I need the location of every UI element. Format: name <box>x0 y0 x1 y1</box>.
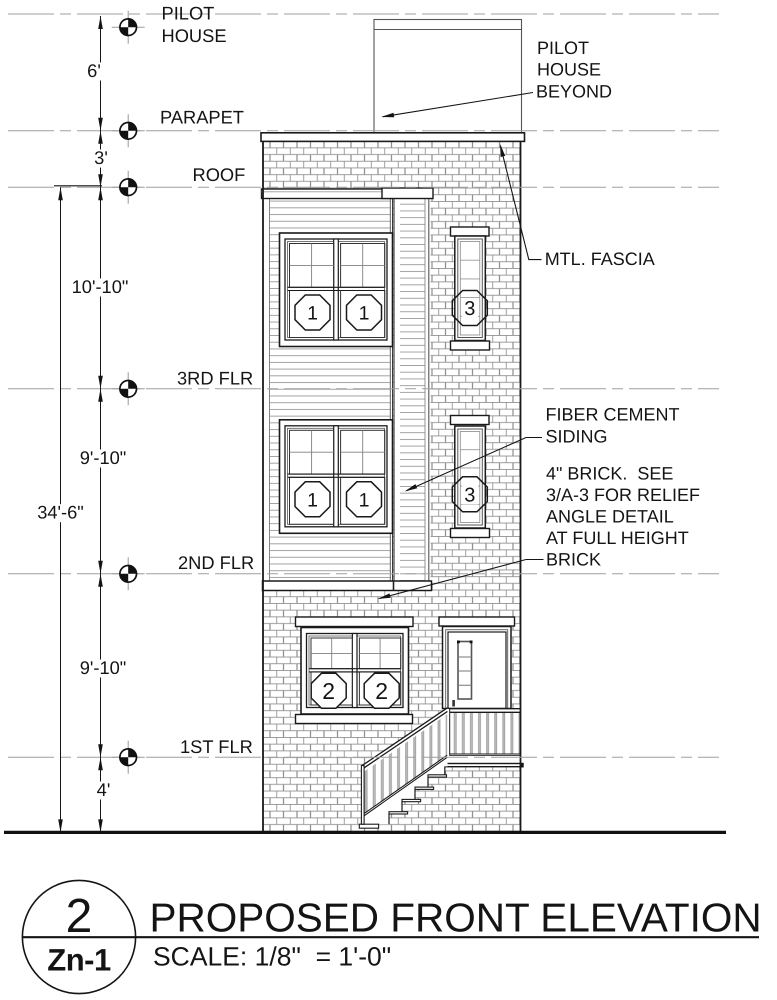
svg-text:10'-10": 10'-10" <box>72 276 129 297</box>
svg-text:2: 2 <box>322 678 335 704</box>
svg-text:3RD FLR: 3RD FLR <box>177 368 253 389</box>
svg-text:9'-10": 9'-10" <box>80 447 127 468</box>
svg-text:1: 1 <box>307 303 318 325</box>
svg-text:1: 1 <box>307 489 318 511</box>
svg-text:BRICK: BRICK <box>546 550 601 570</box>
svg-text:PARAPET: PARAPET <box>160 107 244 128</box>
svg-text:AT FULL HEIGHT: AT FULL HEIGHT <box>546 528 689 548</box>
svg-text:4': 4' <box>97 779 111 800</box>
svg-text:SCALE: 1/8" = 1'-0": SCALE: 1/8" = 1'-0" <box>153 941 391 971</box>
svg-text:1: 1 <box>359 303 370 325</box>
svg-text:HOUSE: HOUSE <box>162 25 227 46</box>
svg-text:2: 2 <box>375 678 388 704</box>
svg-text:2: 2 <box>66 890 93 943</box>
svg-text:ANGLE DETAIL: ANGLE DETAIL <box>546 507 674 527</box>
svg-text:SIDING: SIDING <box>546 427 608 447</box>
svg-text:ROOF: ROOF <box>193 164 246 185</box>
svg-text:3/A-3 FOR RELIEF: 3/A-3 FOR RELIEF <box>546 485 700 505</box>
svg-text:3': 3' <box>94 147 108 168</box>
svg-text:2ND FLR: 2ND FLR <box>178 552 254 573</box>
svg-text:1ST FLR: 1ST FLR <box>180 736 253 757</box>
svg-text:9'-10": 9'-10" <box>80 657 127 678</box>
svg-text:PROPOSED FRONT ELEVATION: PROPOSED FRONT ELEVATION <box>150 895 762 941</box>
svg-text:FIBER CEMENT: FIBER CEMENT <box>546 405 680 425</box>
svg-text:BEYOND: BEYOND <box>536 81 612 101</box>
svg-text:34'-6": 34'-6" <box>37 502 84 523</box>
svg-text:3: 3 <box>464 485 475 507</box>
svg-text:Zn-1: Zn-1 <box>47 943 111 978</box>
svg-text:PILOT: PILOT <box>537 38 589 58</box>
svg-text:1: 1 <box>359 489 370 511</box>
svg-text:6': 6' <box>87 60 101 81</box>
svg-text:3: 3 <box>464 298 475 320</box>
svg-text:HOUSE: HOUSE <box>537 60 601 80</box>
svg-text:4" BRICK. SEE: 4" BRICK. SEE <box>546 464 673 484</box>
svg-text:MTL. FASCIA: MTL. FASCIA <box>545 249 655 269</box>
svg-text:PILOT: PILOT <box>162 3 215 24</box>
